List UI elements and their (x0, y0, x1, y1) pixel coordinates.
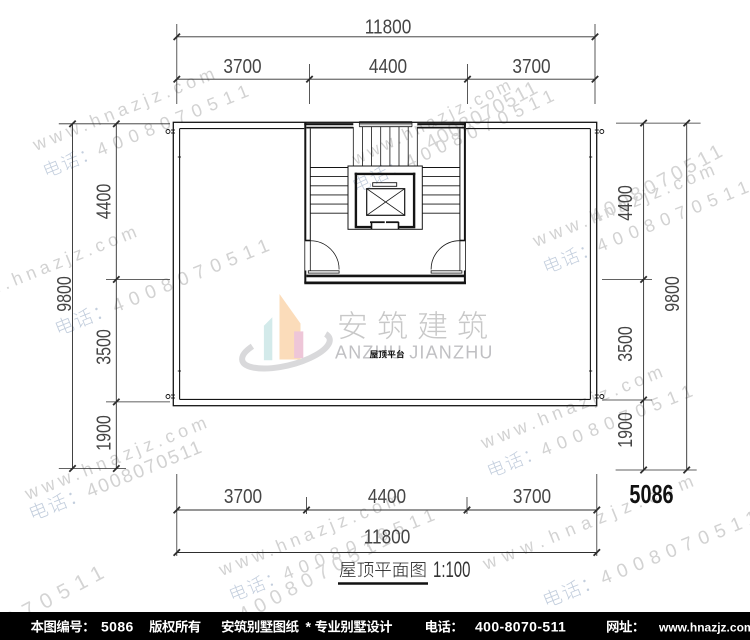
svg-text:4400: 4400 (614, 185, 636, 221)
svg-text:4400: 4400 (368, 485, 406, 508)
svg-text:3700: 3700 (512, 55, 550, 78)
svg-text:4400: 4400 (93, 184, 115, 220)
svg-text:5086: 5086 (101, 619, 134, 635)
svg-text:ANZHU JIANZHU: ANZHU JIANZHU (335, 343, 494, 363)
svg-text:1:100: 1:100 (433, 557, 470, 582)
svg-text:5086: 5086 (629, 480, 673, 509)
svg-text:3500: 3500 (93, 329, 115, 365)
svg-text:3700: 3700 (223, 55, 261, 78)
svg-text:3700: 3700 (224, 485, 262, 508)
svg-text:www.hnazjz.com: www.hnazjz.com (658, 621, 750, 635)
svg-text:400-8070-511: 400-8070-511 (475, 619, 566, 635)
svg-text:*: * (306, 619, 312, 635)
svg-text:11800: 11800 (365, 15, 412, 38)
svg-text:11800: 11800 (364, 525, 411, 548)
svg-text:9800: 9800 (53, 276, 75, 312)
svg-text:3700: 3700 (513, 485, 551, 508)
svg-text:4400: 4400 (369, 55, 407, 78)
svg-text:3500: 3500 (614, 326, 636, 362)
svg-text:9800: 9800 (661, 276, 683, 312)
svg-text:1900: 1900 (614, 412, 636, 448)
svg-text:1900: 1900 (93, 415, 115, 451)
